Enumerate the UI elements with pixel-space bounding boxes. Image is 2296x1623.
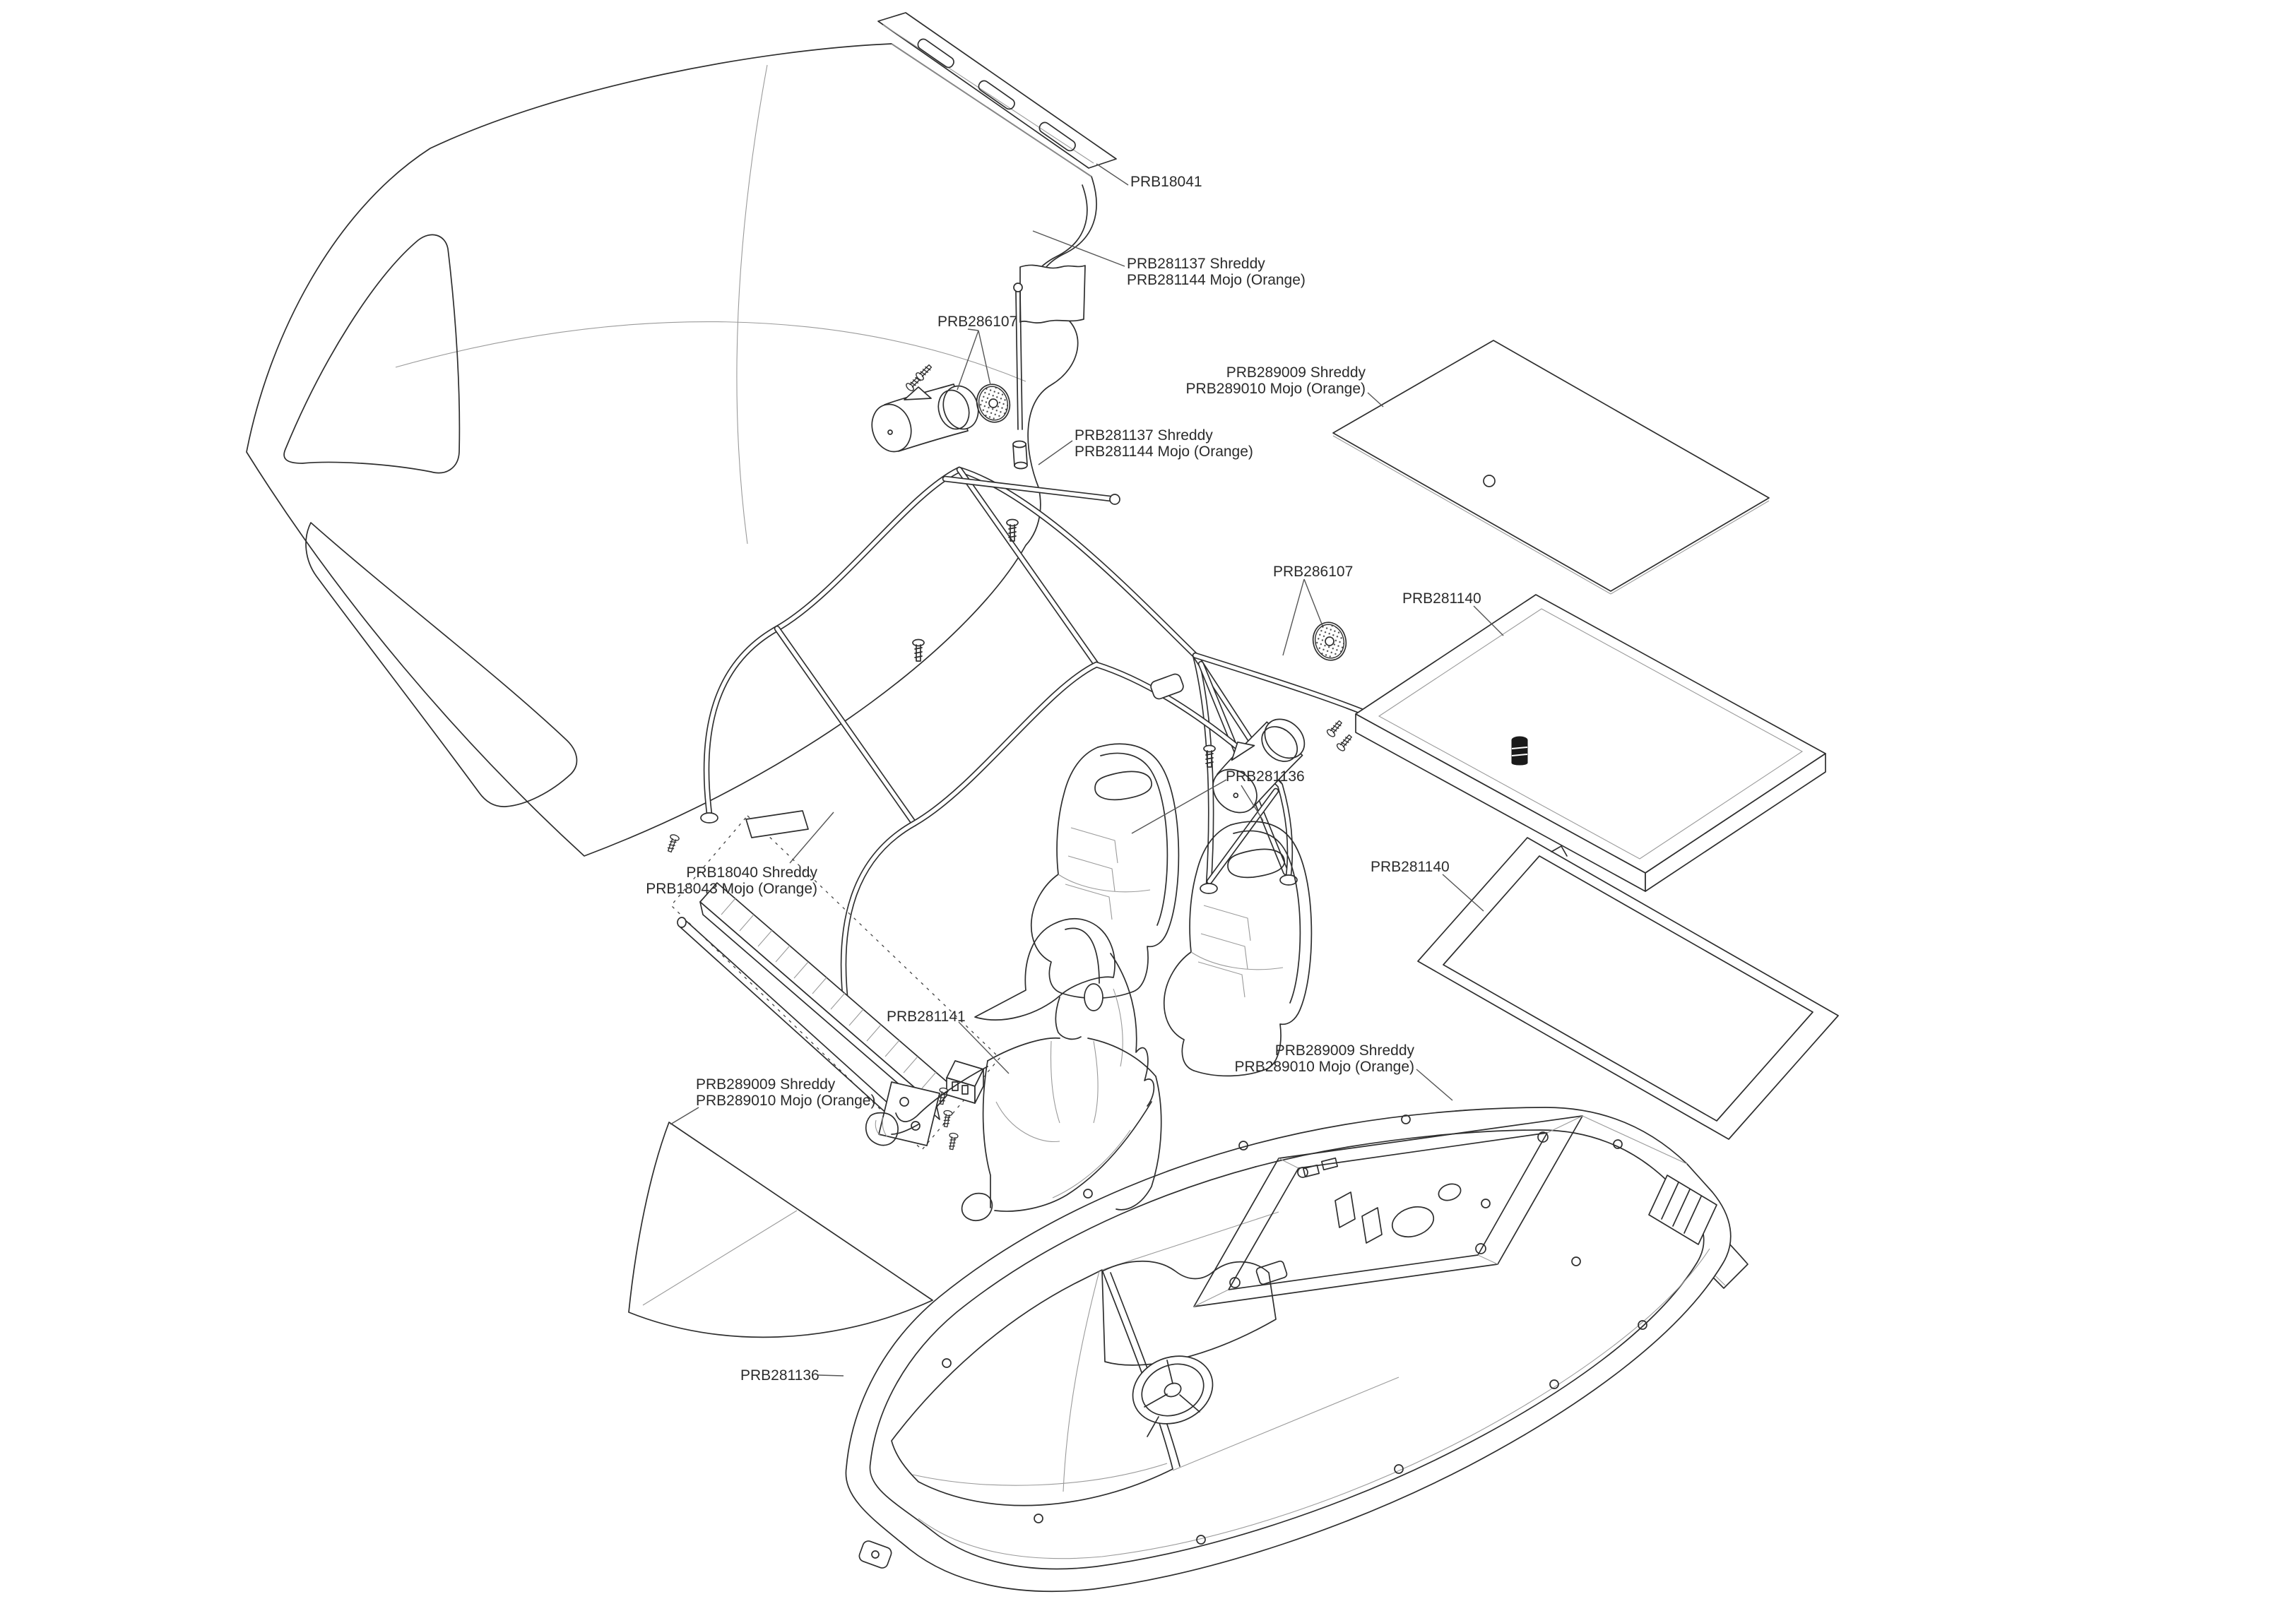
part-number: PRB18040 Shreddy <box>646 864 817 881</box>
part-number: PRB281136 <box>740 1367 819 1384</box>
light-bar-switch <box>947 1061 983 1103</box>
screw-icon <box>947 1133 959 1151</box>
hatch-seal-frame <box>1418 838 1838 1139</box>
driver-right-fist <box>962 1194 993 1221</box>
part-number: PRB289009 Shreddy <box>1186 364 1366 381</box>
headphone-ear-cup <box>1084 984 1103 1011</box>
bow-bracket <box>858 1540 893 1570</box>
part-number: PRB281136 <box>1226 768 1305 785</box>
speaker-grille-lower <box>1309 619 1350 664</box>
label-hull: PRB281136 <box>740 1367 819 1384</box>
part-number: PRB281137 Shreddy <box>1127 256 1306 272</box>
flag-pole-ball <box>1014 283 1022 292</box>
part-number: PRB289010 Mojo (Orange) <box>696 1093 875 1109</box>
part-number: PRB281140 <box>1402 590 1481 607</box>
hatch-cover <box>1356 595 1825 891</box>
label-roof-rack-rail: PRB18041 <box>1130 174 1202 190</box>
label-light-bar: PRB18040 ShreddyPRB18043 Mojo (Orange) <box>646 864 817 897</box>
label-windshield-decal: PRB289009 ShreddyPRB289010 Mojo (Orange) <box>696 1076 875 1109</box>
label-deck-decal-top: PRB289009 ShreddyPRB289010 Mojo (Orange) <box>1186 364 1366 397</box>
part-number: PRB281144 Mojo (Orange) <box>1127 272 1306 288</box>
label-hatch-cover: PRB281140 <box>1402 590 1481 607</box>
label-rear-decal-panel: PRB289009 ShreddyPRB289010 Mojo (Orange) <box>1235 1042 1414 1075</box>
screw-icon <box>1326 719 1344 738</box>
part-number: PRB281137 Shreddy <box>1075 427 1253 444</box>
part-number: PRB289009 Shreddy <box>696 1076 875 1093</box>
part-number: PRB281141 <box>887 1009 966 1025</box>
part-number: PRB286107 <box>937 314 1017 330</box>
label-hatch-seal-frame: PRB281140 <box>1371 859 1450 875</box>
part-number: PRB18043 Mojo (Orange) <box>646 881 817 897</box>
label-canopy-body: PRB281137 ShreddyPRB281144 Mojo (Orange) <box>1127 256 1306 288</box>
part-number: PRB289009 Shreddy <box>1235 1042 1414 1059</box>
diagram-line-art <box>0 0 2296 1623</box>
seat-left <box>1031 744 1179 998</box>
part-number: PRB286107 <box>1273 564 1353 580</box>
part-number: PRB281144 Mojo (Orange) <box>1075 444 1253 460</box>
windshield-decal <box>629 1122 933 1337</box>
label-driver-figure: PRB281141 <box>887 1009 966 1025</box>
screw-icon <box>665 833 680 852</box>
seat-right <box>1164 821 1312 1076</box>
deck-decal-sheet-top <box>1333 340 1769 594</box>
label-grab-bar: PRB281137 ShreddyPRB281144 Mojo (Orange) <box>1075 427 1253 460</box>
part-number: PRB289010 Mojo (Orange) <box>1186 381 1366 397</box>
part-number: PRB281140 <box>1371 859 1450 875</box>
screw-icon <box>1336 733 1354 752</box>
part-number: PRB18041 <box>1130 174 1202 190</box>
canopy <box>247 44 1096 856</box>
hull <box>846 1107 1730 1591</box>
driver-hair <box>1111 953 1154 1106</box>
label-speaker-lower: PRB286107 <box>1273 564 1353 580</box>
exploded-parts-diagram: PRB18041 PRB281137 ShreddyPRB281144 Mojo… <box>0 0 2296 1623</box>
label-speaker-upper: PRB286107 <box>937 314 1017 330</box>
flag-mount-socket <box>1013 441 1026 448</box>
part-number: PRB289010 Mojo (Orange) <box>1235 1059 1414 1075</box>
label-seat-set: PRB281136 <box>1226 768 1305 785</box>
hatch-plug <box>1512 737 1527 765</box>
rail-bracket <box>1149 672 1185 700</box>
